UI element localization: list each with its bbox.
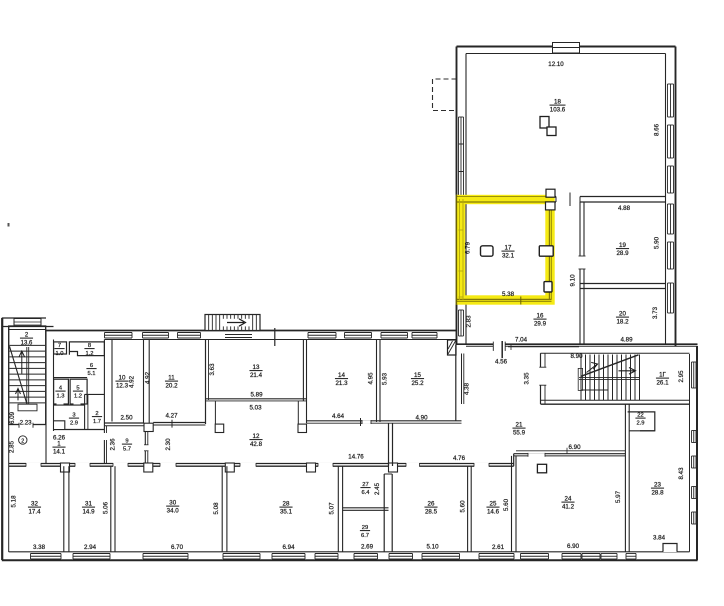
svg-text:25.2: 25.2 [411,380,424,387]
svg-text:5.06: 5.06 [102,501,109,514]
svg-text:5.07: 5.07 [329,502,336,515]
svg-text:15: 15 [414,372,421,379]
svg-text:21.3: 21.3 [335,380,348,387]
svg-text:12.10: 12.10 [548,61,564,68]
svg-text:25: 25 [490,501,497,508]
svg-text:13.6: 13.6 [21,341,33,347]
svg-text:1Г: 1Г [659,372,666,379]
svg-text:20: 20 [619,311,626,318]
svg-text:2: 2 [21,438,24,444]
svg-text:5.89: 5.89 [250,391,263,398]
svg-text:2.50: 2.50 [120,414,133,421]
svg-text:2.45: 2.45 [374,482,381,495]
svg-text:5.93: 5.93 [382,372,389,385]
svg-text:4.64: 4.64 [332,413,345,420]
svg-text:24: 24 [565,496,572,503]
svg-text:18.2: 18.2 [616,319,629,326]
svg-text:5.97: 5.97 [615,490,622,503]
svg-text:2.69: 2.69 [361,544,374,551]
svg-text:16: 16 [537,313,544,320]
svg-text:32: 32 [31,501,38,508]
svg-text:4.92: 4.92 [129,375,136,388]
svg-text:14.76: 14.76 [348,453,364,460]
svg-text:2.61: 2.61 [492,544,505,551]
svg-text:28.8: 28.8 [651,490,664,497]
svg-text:9.10: 9.10 [570,274,577,287]
svg-text:5.7: 5.7 [123,447,131,453]
svg-text:3.35: 3.35 [524,372,531,385]
svg-text:14.9: 14.9 [82,509,95,516]
svg-text:5.08: 5.08 [213,502,220,515]
svg-text:6.79: 6.79 [465,241,472,254]
svg-text:2.95: 2.95 [678,370,685,383]
svg-text:30: 30 [169,500,176,507]
svg-text:12.3: 12.3 [116,383,129,390]
svg-text:6.7: 6.7 [361,533,369,539]
svg-text:4.76: 4.76 [453,455,466,462]
svg-text:4.95: 4.95 [368,372,375,385]
svg-text:4.56: 4.56 [495,359,508,366]
svg-text:17: 17 [505,245,512,252]
svg-text:14.6: 14.6 [487,509,500,516]
svg-text:31: 31 [85,501,92,508]
svg-text:6.4: 6.4 [361,490,370,496]
svg-text:1: 1 [57,441,61,448]
svg-text:4.89: 4.89 [620,337,633,344]
svg-text:8.43: 8.43 [678,467,685,480]
svg-text:28.9: 28.9 [616,250,629,257]
svg-text:3.63: 3.63 [209,363,216,376]
svg-text:2.85: 2.85 [9,440,16,453]
svg-text:5.10: 5.10 [426,544,439,551]
svg-text:4.27: 4.27 [165,413,178,420]
svg-text:6.90: 6.90 [568,444,581,451]
svg-text:3.73: 3.73 [652,306,659,319]
svg-text:17.4: 17.4 [28,509,41,516]
svg-text:5.90: 5.90 [654,236,661,249]
svg-text:28.5: 28.5 [425,509,438,516]
svg-text:3.84: 3.84 [653,535,666,542]
svg-text:8.90: 8.90 [570,353,583,360]
svg-text:1.0: 1.0 [55,351,63,357]
svg-text:2.23: 2.23 [20,420,33,427]
svg-text:2.30: 2.30 [165,438,172,451]
svg-text:8.66: 8.66 [654,123,661,136]
svg-text:2.9: 2.9 [70,421,78,427]
svg-text:3.38: 3.38 [33,544,46,551]
svg-text:26.1: 26.1 [656,380,669,387]
svg-text:5.60: 5.60 [460,500,467,513]
svg-text:35.1: 35.1 [280,509,293,516]
svg-text:42.8: 42.8 [250,441,263,448]
svg-text:103.6: 103.6 [550,107,566,114]
svg-text:32.1: 32.1 [502,253,515,260]
svg-text:4.92: 4.92 [144,371,151,384]
svg-text:4.88: 4.88 [618,205,631,212]
svg-text:10: 10 [119,375,126,382]
svg-text:1.7: 1.7 [93,419,101,425]
svg-text:2.36: 2.36 [109,438,116,451]
svg-text:34.0: 34.0 [167,508,180,515]
svg-text:7.04: 7.04 [515,337,528,344]
svg-text:4.38: 4.38 [464,382,471,395]
svg-text:6.90: 6.90 [567,543,580,550]
svg-text:2.94: 2.94 [84,544,97,551]
svg-text:21: 21 [516,422,523,429]
svg-text:41.2: 41.2 [562,504,575,511]
svg-text:55.9: 55.9 [513,430,526,437]
svg-text:13: 13 [253,364,260,371]
svg-text:12: 12 [253,433,260,440]
svg-text:18: 18 [554,99,561,106]
svg-text:20.2: 20.2 [165,383,178,390]
svg-text:6.70: 6.70 [171,544,184,551]
svg-text:14: 14 [338,372,345,379]
svg-text:21.4: 21.4 [250,372,263,379]
svg-text:14.1: 14.1 [53,449,66,456]
svg-text:4.90: 4.90 [415,414,428,421]
svg-text:6.09: 6.09 [9,411,16,424]
svg-text:5.1: 5.1 [87,371,95,377]
svg-text:28: 28 [283,501,290,508]
svg-text:23: 23 [654,482,661,489]
svg-text:5.38: 5.38 [502,291,515,298]
svg-text:1.3: 1.3 [56,394,64,400]
svg-text:5.03: 5.03 [249,405,262,412]
svg-text:6.94: 6.94 [282,544,295,551]
svg-text:1.2: 1.2 [74,394,82,400]
svg-text:2.83: 2.83 [466,315,473,328]
svg-text:5.60: 5.60 [503,498,510,511]
svg-text:26: 26 [428,501,435,508]
svg-text:11: 11 [168,375,175,382]
svg-text:19: 19 [619,242,626,249]
svg-text:5.18: 5.18 [10,495,17,508]
svg-text:29.9: 29.9 [534,321,547,328]
svg-text:2.9: 2.9 [636,421,644,427]
svg-text:1.2: 1.2 [85,351,93,357]
